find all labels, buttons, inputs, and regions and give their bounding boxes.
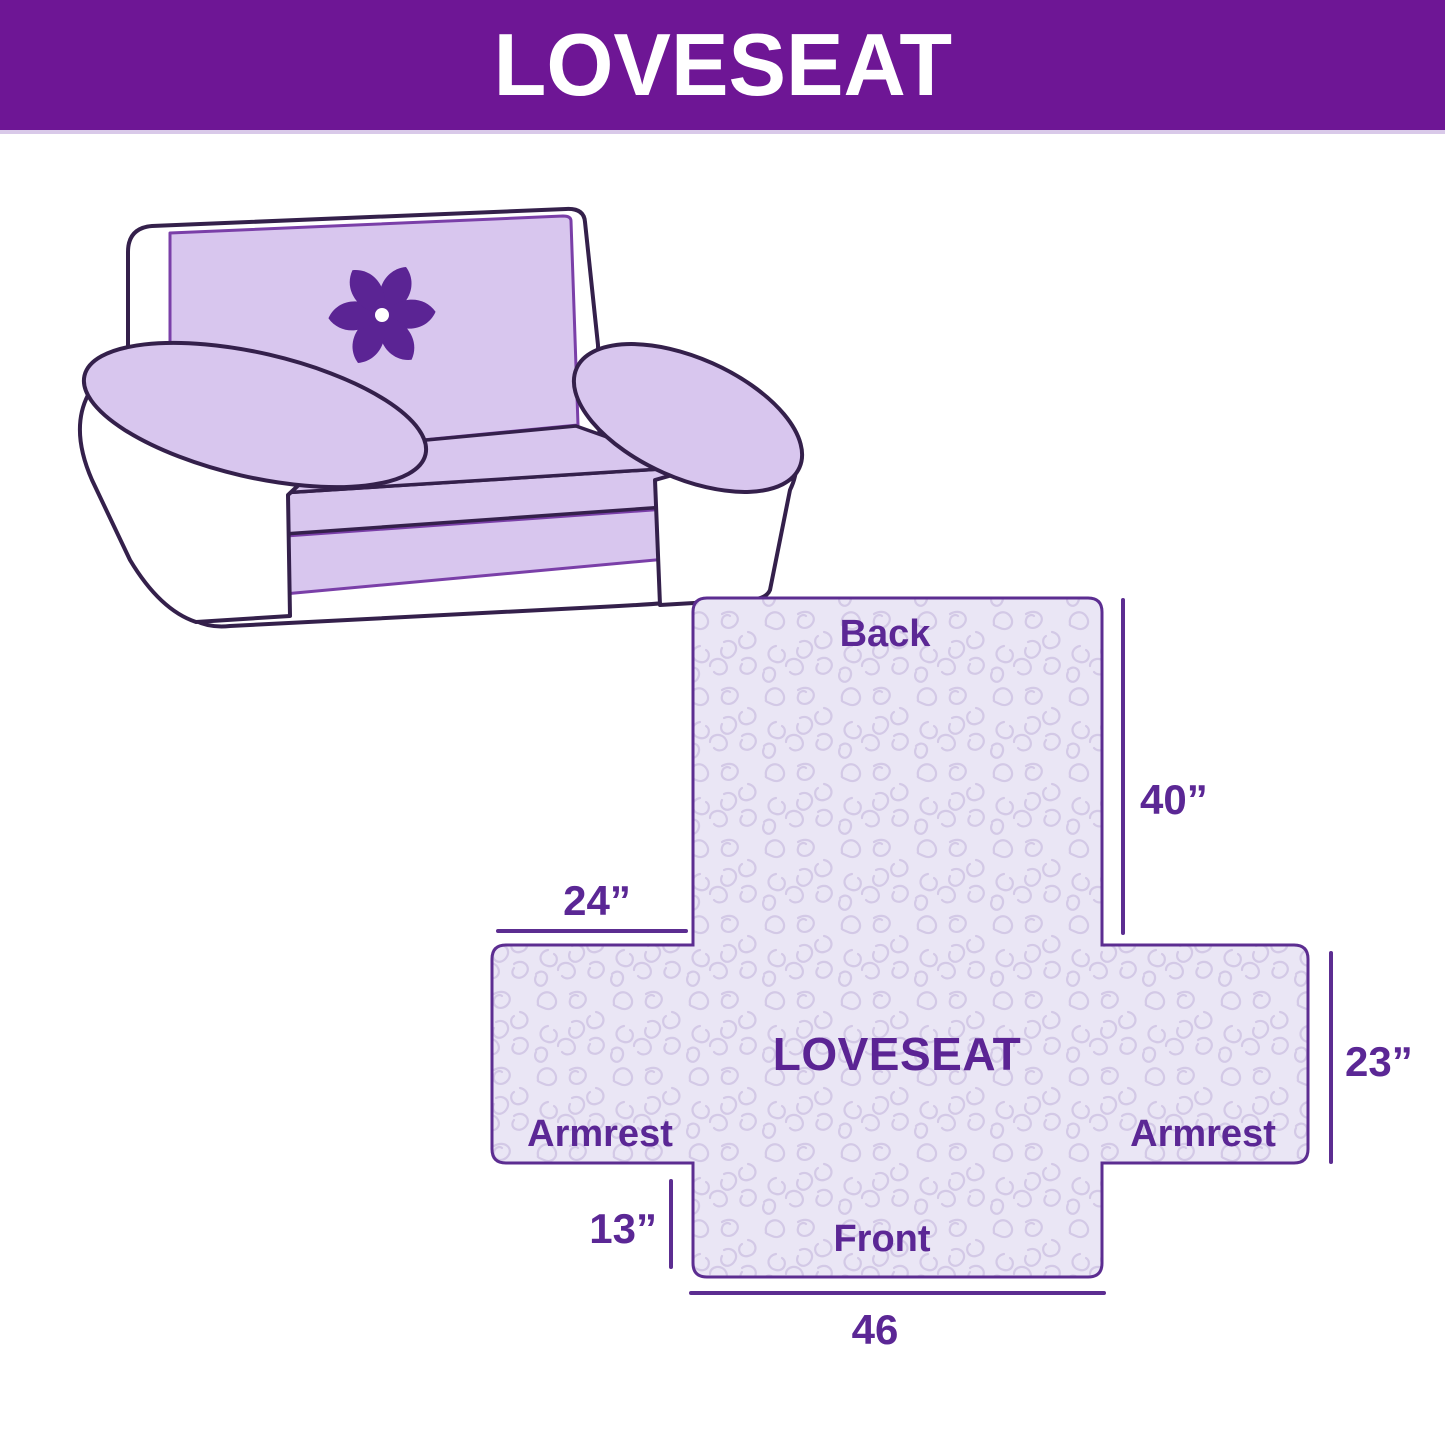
header-banner: LOVESEAT	[0, 0, 1445, 134]
dim-back-length: 40”	[1140, 776, 1208, 823]
armrest-right-label: Armrest	[1130, 1113, 1276, 1155]
diagram-svg: Back Armrest Armrest Front LOVESEAT 40” …	[440, 560, 1445, 1380]
page: LOVESEAT	[0, 0, 1445, 1445]
back-section-label: Back	[840, 613, 932, 655]
cover-outline-shape	[492, 598, 1308, 1277]
dim-front-width: 46	[852, 1306, 899, 1353]
dim-armrest-side-length: 23”	[1345, 1038, 1413, 1085]
diagram-product-label: LOVESEAT	[773, 1028, 1022, 1080]
cover-diagram: Back Armrest Armrest Front LOVESEAT 40” …	[440, 560, 1445, 1380]
dim-armrest-top-width: 24”	[563, 877, 631, 924]
front-section-label: Front	[833, 1218, 930, 1260]
dim-front-drop: 13”	[589, 1205, 657, 1252]
page-title: LOVESEAT	[493, 14, 951, 116]
armrest-left-label: Armrest	[527, 1113, 673, 1155]
